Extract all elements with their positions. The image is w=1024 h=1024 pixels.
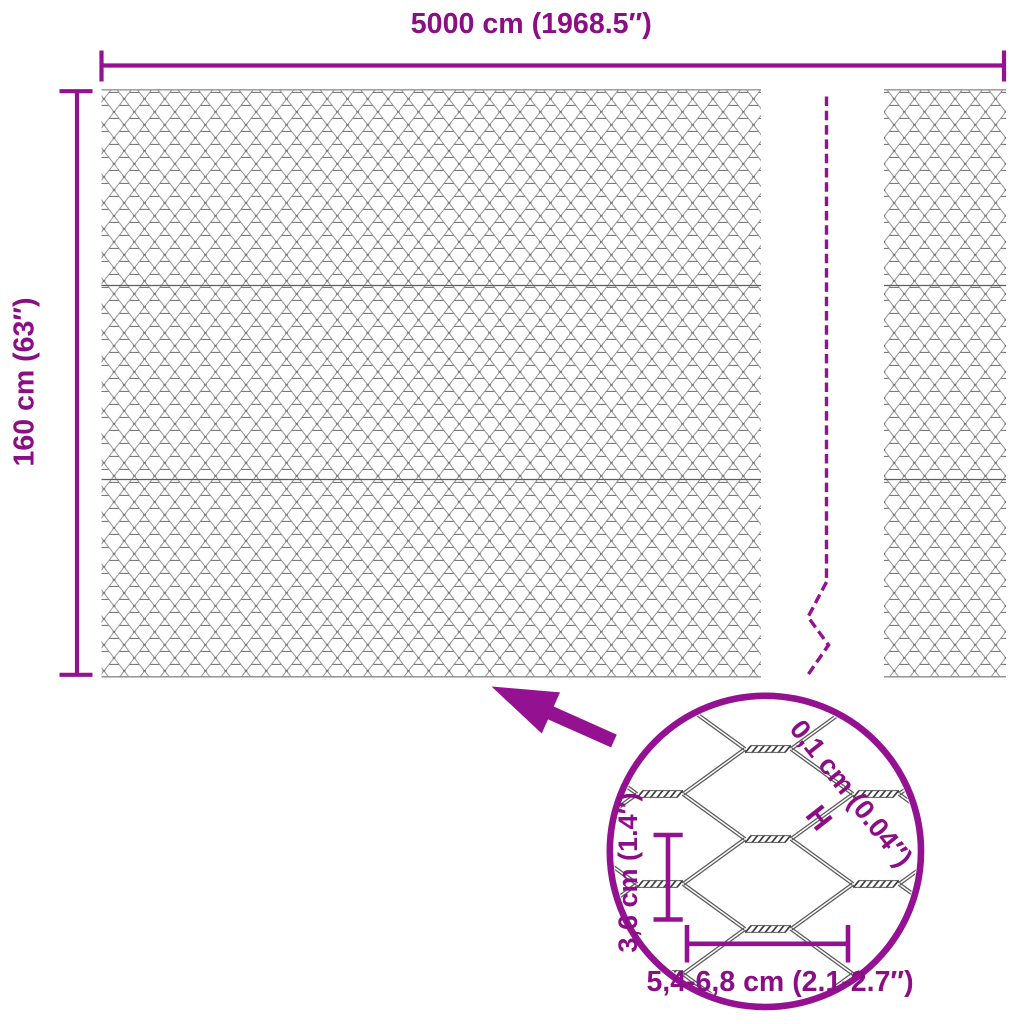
svg-text:5000 cm (1968.5″): 5000 cm (1968.5″) <box>411 8 652 40</box>
svg-text:5,4-6,8 cm (2.1-2.7″): 5,4-6,8 cm (2.1-2.7″) <box>646 966 913 998</box>
svg-text:160 cm (63″): 160 cm (63″) <box>9 298 41 467</box>
svg-text:3,6 cm (1.4″): 3,6 cm (1.4″) <box>613 792 643 952</box>
